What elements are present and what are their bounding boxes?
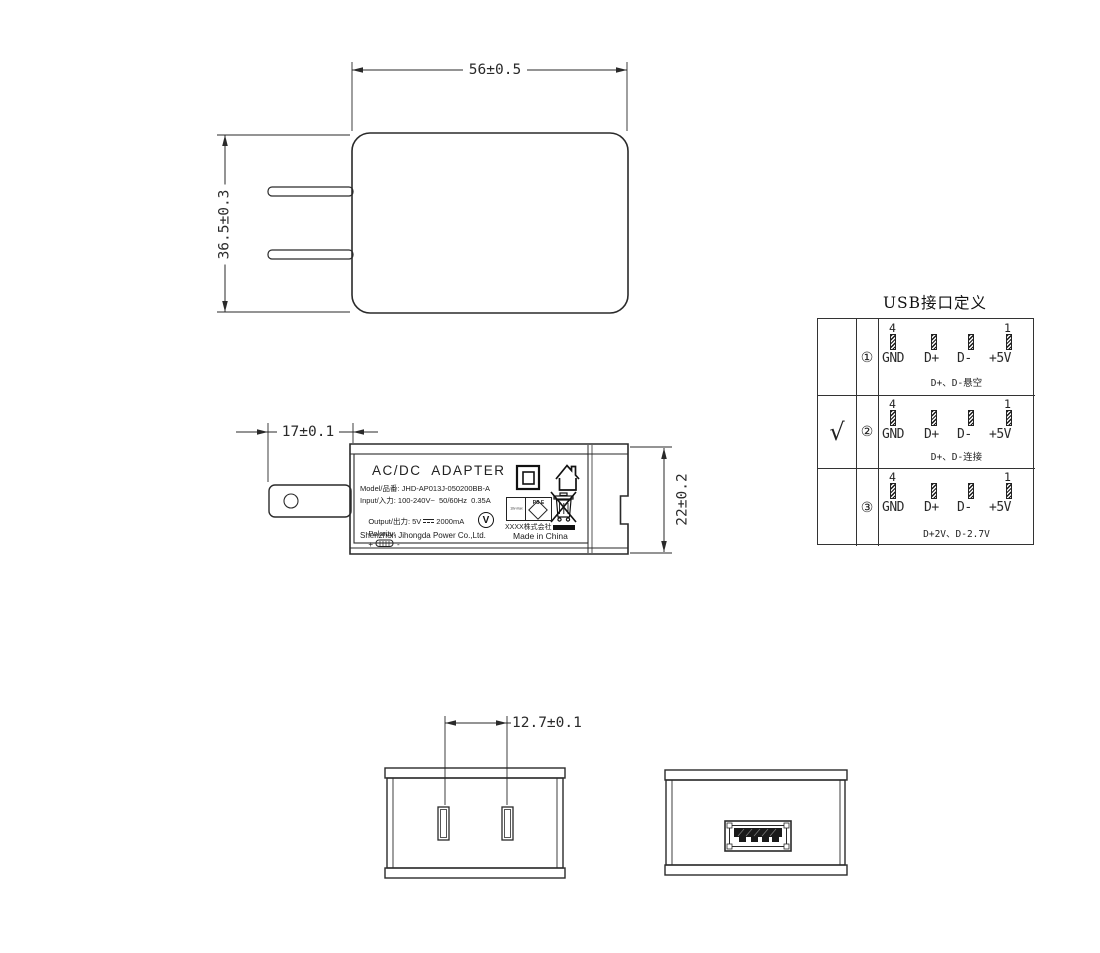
dim-front-width: 56±0.5 xyxy=(463,63,527,78)
dim-pin-spacing: 12.7±0.1 xyxy=(512,716,590,731)
row-number-1: ① xyxy=(856,319,878,395)
label-made-in: Made in China xyxy=(513,531,568,541)
label-output-suffix: 2000mA xyxy=(436,517,464,526)
usb-pin-icon xyxy=(1006,410,1012,426)
efficiency-v-icon: V xyxy=(478,512,494,528)
indoor-use-icon xyxy=(556,466,579,491)
table-row: 4 1 GND D+ D- +5V D+、D-连接 xyxy=(878,395,1035,468)
row-number-3: ③ xyxy=(856,468,878,546)
polarity-minus: - xyxy=(397,540,400,549)
pse-mark: 10v max PS E xyxy=(506,497,552,521)
pin-label-dminus: D- xyxy=(957,427,972,442)
label-model: Model/品番: JHD-AP013J-050200BB-A xyxy=(360,484,490,493)
row-caption: D+、D-连接 xyxy=(878,449,1035,463)
selected-check-mark: √ xyxy=(818,396,856,468)
pin-number-1: 1 xyxy=(1004,397,1011,411)
usb-pin-icon xyxy=(890,334,896,350)
usb-pin-icon xyxy=(1006,483,1012,499)
usb-port-icon xyxy=(725,821,791,851)
pin-number-4: 4 xyxy=(889,470,896,484)
usb-table-title: USB接口定义 xyxy=(883,291,987,313)
usb-pin-icon xyxy=(890,483,896,499)
row-caption: D+、D-悬空 xyxy=(878,375,1035,389)
usb-pin-icon xyxy=(1006,334,1012,350)
usb-pin-icon xyxy=(968,410,974,426)
usb-pin-icon xyxy=(890,410,896,426)
pin-label-dminus: D- xyxy=(957,351,972,366)
pin-number-4: 4 xyxy=(889,321,896,335)
polarity-plus: + xyxy=(368,540,373,549)
row-number-2: ② xyxy=(856,395,878,468)
pin-label-5v: +5V xyxy=(989,351,1011,366)
class-ii-icon xyxy=(517,466,539,489)
dim-front-height: 36.5±0.3 xyxy=(218,185,233,265)
dim-body-thickness: 22±0.2 xyxy=(676,473,691,527)
pin-label-dminus: D- xyxy=(957,500,972,515)
usb-pin-icon xyxy=(931,483,937,499)
pin-label-gnd: GND xyxy=(882,500,904,515)
label-company: Shenzhen Jihongda Power Co.,Ltd. xyxy=(360,531,486,540)
usb-definition-table: √ ① ② ③ 4 1 GND D+ D- +5V D+、D-悬空 4 1 G xyxy=(817,318,1034,545)
dc-symbol-icon xyxy=(423,519,434,525)
pin-number-1: 1 xyxy=(1004,321,1011,335)
usb-pin-icon xyxy=(931,334,937,350)
weee-bin-icon xyxy=(551,492,576,522)
pin-label-dplus: D+ xyxy=(924,500,939,515)
table-row: 4 1 GND D+ D- +5V D+、D-悬空 xyxy=(878,319,1035,395)
plug-face-view xyxy=(385,716,565,878)
polarity-connector-icon xyxy=(375,539,395,548)
dim-plug-length: 17±0.1 xyxy=(277,425,339,440)
pin-label-dplus: D+ xyxy=(924,351,939,366)
pse-diamond-text: PS E xyxy=(526,501,551,507)
table-row: 4 1 GND D+ D- +5V D+2V、D-2.7V xyxy=(878,468,1035,546)
pse-side-text: 10v max xyxy=(510,507,522,511)
pin-label-5v: +5V xyxy=(989,427,1011,442)
weee-date-bar xyxy=(553,525,575,531)
label-input: Input/入力: 100-240V~ 50/60Hz 0.35A xyxy=(360,496,491,505)
label-title: AC/DC ADAPTER xyxy=(372,463,506,478)
usb-pin-icon xyxy=(968,483,974,499)
adapter-technical-drawing: 56±0.5 36.5±0.3 17±0.1 22±0.2 12.7±0.1 A… xyxy=(0,0,1100,953)
front-view xyxy=(217,62,628,313)
usb-pin-icon xyxy=(931,410,937,426)
pin-number-1: 1 xyxy=(1004,470,1011,484)
pin-label-gnd: GND xyxy=(882,427,904,442)
pin-label-dplus: D+ xyxy=(924,427,939,442)
pin-label-gnd: GND xyxy=(882,351,904,366)
usb-face-view xyxy=(665,770,847,875)
pin-label-5v: +5V xyxy=(989,500,1011,515)
pin-number-4: 4 xyxy=(889,397,896,411)
row-caption: D+2V、D-2.7V xyxy=(878,526,1035,540)
usb-pin-icon xyxy=(968,334,974,350)
